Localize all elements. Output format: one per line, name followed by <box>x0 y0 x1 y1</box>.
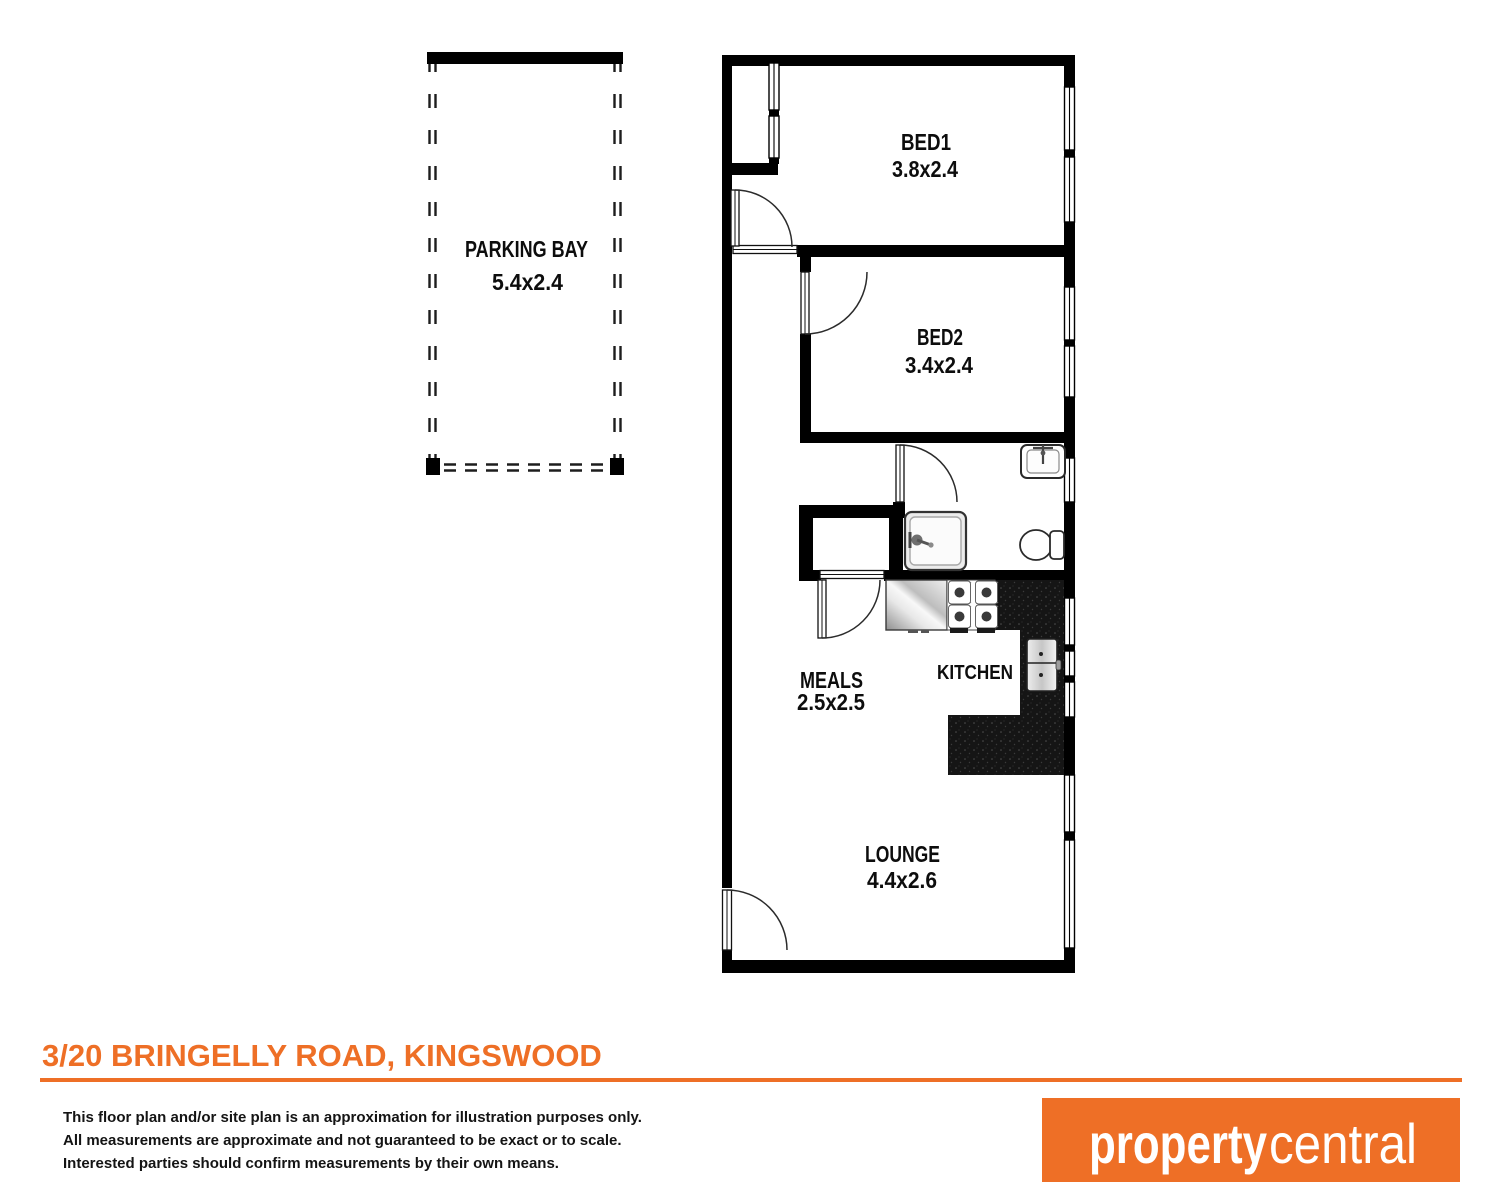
bed1-door <box>731 190 797 254</box>
entry-door <box>723 890 788 950</box>
kitchen-label: KITCHEN <box>937 662 1013 684</box>
walls <box>722 55 1075 973</box>
shower <box>905 512 966 570</box>
basin <box>1021 445 1065 478</box>
bed1-dims: 3.8x2.4 <box>892 156 958 182</box>
parking-label: PARKING BAY <box>465 236 588 262</box>
bed2-dims: 3.4x2.4 <box>905 352 973 378</box>
footer: 3/20 BRINGELLY ROAD, KINGSWOOD This floo… <box>40 1038 1462 1182</box>
parking-dims: 5.4x2.4 <box>492 269 563 295</box>
brand-logo: property central <box>1042 1098 1460 1182</box>
kitchen-bench <box>886 580 947 632</box>
lounge-dims: 4.4x2.6 <box>867 867 937 893</box>
brand-logo-bold-text: property <box>1089 1112 1267 1175</box>
fridge <box>1027 639 1061 691</box>
disclaimer-line-2: All measurements are approximate and not… <box>63 1132 622 1149</box>
disclaimer-line-3: Interested parties should confirm measur… <box>63 1155 559 1172</box>
bathroom-door <box>896 445 957 502</box>
disclaimer-line-1: This floor plan and/or site plan is an a… <box>63 1109 642 1126</box>
parking-top-wall <box>427 52 623 64</box>
bed1-label: BED1 <box>901 129 951 155</box>
window-bed1-alcove <box>769 63 779 158</box>
toilet <box>1020 530 1064 560</box>
window-kitchen <box>1065 598 1075 717</box>
parking-dashed-sides <box>430 64 621 471</box>
parking-post-right <box>610 458 624 475</box>
bed2-label: BED2 <box>917 324 963 350</box>
lounge-label: LOUNGE <box>865 841 940 867</box>
floor-plan-page: PARKING BAY 5.4x2.4 <box>0 0 1500 1200</box>
bed2-door <box>801 272 867 334</box>
address-title: 3/20 BRINGELLY ROAD, KINGSWOOD <box>42 1038 602 1073</box>
parking-post-left <box>426 458 440 475</box>
meals-door <box>818 571 884 639</box>
divider-rule <box>40 1078 1462 1082</box>
brand-logo-light-text: central <box>1269 1112 1417 1175</box>
bathroom-fixtures <box>905 445 1065 570</box>
window-lounge <box>1065 775 1075 948</box>
parking-bay: PARKING BAY 5.4x2.4 <box>426 52 624 475</box>
floor-plan-canvas: PARKING BAY 5.4x2.4 <box>0 0 1500 1200</box>
meals-dims: 2.5x2.5 <box>797 689 865 715</box>
cooktop <box>947 580 998 633</box>
